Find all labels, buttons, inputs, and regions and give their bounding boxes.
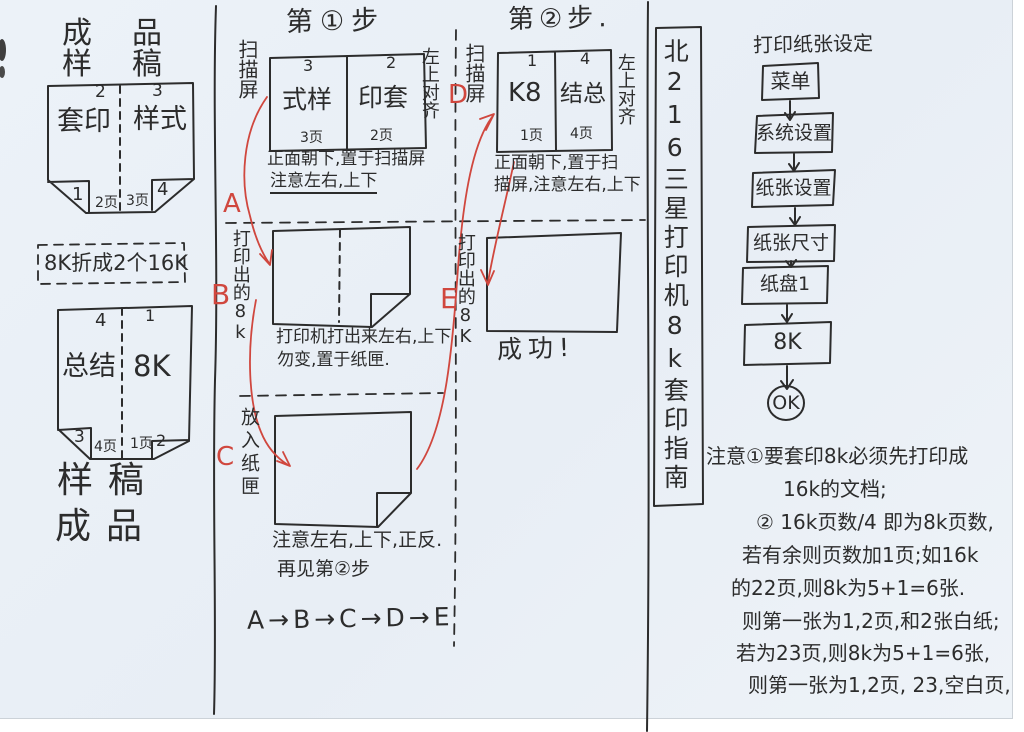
step2-scanner-label: 扫描屏 [463, 43, 484, 103]
box1-num-topleft: 2 [95, 84, 106, 102]
note-line-2: 16k的文档; [783, 479, 887, 500]
leftpanel-top-label-row2: 样稿 [62, 49, 202, 81]
fold-note: 8K折成2个16K [44, 252, 188, 274]
step1-align-label: 左上对齐 [419, 47, 438, 119]
leftpanel-bottom-label-row2: 成品 [55, 508, 157, 546]
step2-success-label: 成功! [497, 335, 576, 364]
flow-step-paper-size: 纸张尺寸 [747, 224, 835, 262]
step1-printer-note-line2: 勿变,置于纸匣. [277, 352, 390, 370]
step2-align-label: 左上对齐 [615, 53, 634, 125]
note-line-7: 若为23页,则8k为5+1=6张, [736, 643, 990, 664]
leftpanel-top-label-row1: 成品 [62, 18, 202, 50]
step1-box-num-right: 2 [386, 55, 396, 72]
flow-end-ok: OK [768, 392, 804, 414]
step1-marker-a: A [223, 191, 241, 218]
box2-cell-left: 总结 [62, 353, 116, 381]
step1-printed-label: 打印出的8k [230, 229, 249, 343]
step1-caption-line2: 注意左右,上下 [270, 173, 377, 194]
step2-caption-line2: 描屏,注意左右,上下 [494, 177, 641, 195]
box1-page-left: 2页 [95, 196, 118, 211]
step1-tray-label: 放入纸匣 [238, 407, 258, 499]
note-line-4: 若有余则页数加1页;如16k [742, 545, 979, 566]
note-line-3: ② 16k页数/4 即为8k页数, [756, 512, 994, 533]
box1-page-right: 3页 [126, 194, 149, 209]
step2-box-page-right: 4页 [570, 127, 593, 142]
box2-num-topleft: 4 [95, 312, 106, 331]
step2-caption-line1: 正面朝下,置于扫 [494, 155, 618, 173]
step1-marker-c: C [216, 444, 234, 471]
box2-page-left: 4页 [94, 440, 117, 455]
box2-page-right: 1页 [130, 437, 153, 452]
box2-num-topright: 1 [145, 308, 155, 325]
step1-printer-note-line1: 打印机打出来左右,上下 [276, 329, 451, 347]
flow-step-menu: 菜单 [762, 63, 819, 100]
flow-step-paper-tray: 纸盘1 [742, 265, 828, 304]
step1-scanner-label: 扫描屏 [236, 39, 257, 99]
page-title-strip: 北216三星打印机8k套印指南 [661, 38, 687, 500]
box2-flap-right: 2 [156, 433, 166, 450]
sequence-label: A→B→C→D→E [247, 604, 454, 634]
step2-box-page-left: 1页 [520, 129, 543, 144]
flow-step-system-settings: 系统设置 [755, 113, 833, 153]
step1-caption-line1: 正面朝下,置于扫描屏 [267, 151, 425, 169]
box1-cell-right: 样式 [133, 106, 187, 134]
box1-cell-left: 套印 [57, 108, 111, 136]
step1-title: 第①步 [286, 7, 386, 37]
step1-box-cell-left: 式样 [282, 87, 332, 113]
scanned-handdrawn-page: 成品 样稿 2 3 套印 样式 1 4 2页 3页 8K折成2个16K 4 1 … [0, 0, 1024, 732]
box1-num-topright: 3 [152, 83, 163, 101]
note-line-5: 的22页,则8k为5+1=6张. [731, 578, 965, 599]
step2-printed-label: 打印出的8K [455, 233, 474, 347]
step1-box-page-left: 3页 [300, 131, 323, 146]
step1-tray-note-line1: 注意左右,上下,正反. [272, 531, 442, 551]
box2-flap-left: 3 [74, 429, 85, 447]
box1-flap-left: 1 [72, 186, 83, 205]
step1-tray-note-line2: 再见第②步 [277, 560, 370, 580]
note-line-1: 注意①要套印8k必须先打印成 [706, 446, 968, 467]
box1-flap-right: 4 [157, 181, 168, 200]
box2-cell-right: 8K [133, 351, 170, 381]
step2-box-num-right: 4 [580, 51, 590, 68]
step1-box-cell-right: 印套 [358, 85, 408, 111]
flow-step-paper-settings: 纸张设置 [752, 170, 835, 207]
leftpanel-bottom-label-row1: 样稿 [57, 462, 159, 500]
flow-step-8k: 8K [744, 322, 831, 364]
flowchart-title: 打印纸张设定 [753, 33, 873, 56]
step2-box-cell-left: K8 [508, 80, 542, 107]
step1-marker-b: B [211, 280, 230, 309]
step2-box-cell-right: 结总 [560, 82, 606, 106]
step1-box-num-left: 3 [303, 58, 313, 75]
note-line-8: 则第一张为1,2页, 23,空白页, [748, 675, 1011, 696]
step2-title: 第②步. [508, 5, 612, 34]
step2-box-num-left: 1 [527, 53, 537, 70]
step1-box-page-right: 2页 [370, 129, 393, 144]
note-line-6: 则第一张为1,2页,和2张白纸; [742, 611, 1000, 632]
